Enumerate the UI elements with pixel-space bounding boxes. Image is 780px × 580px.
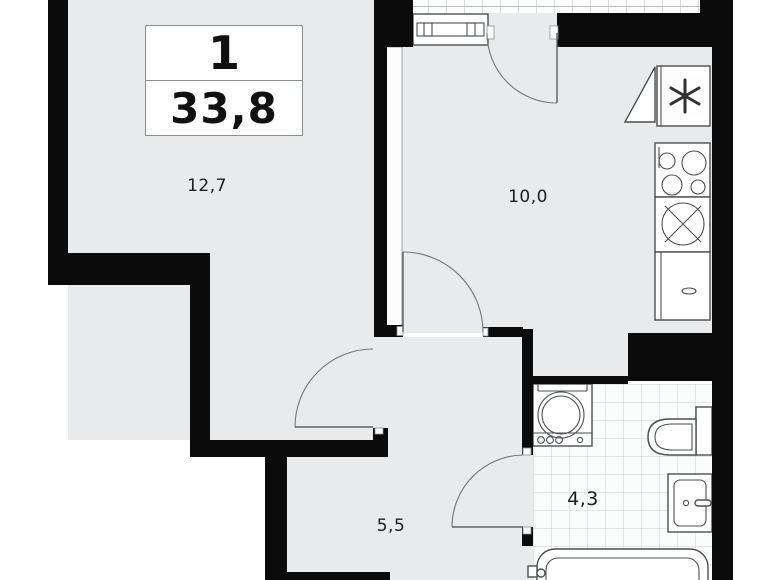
bathroom-sink-icon (668, 474, 712, 532)
kitchen-sink-icon (655, 197, 710, 252)
floor-plan-drawing (0, 0, 780, 580)
hallway-floor (285, 337, 533, 580)
total-area: 33,8 (146, 81, 302, 135)
window-icon (413, 14, 488, 45)
balcony-doorway-floor (487, 13, 557, 47)
washing-machine-icon (533, 384, 592, 446)
rooms-count: 1 (146, 26, 302, 81)
bathtub-icon (528, 549, 708, 580)
kitchen-floor-strip (533, 333, 628, 377)
room-label-living-room: 12,7 (187, 176, 227, 196)
room-label-kitchen: 10,0 (508, 187, 548, 207)
room-label-bathroom: 4,3 (567, 488, 599, 510)
balcony-grid (408, 0, 700, 13)
kitchen-counter-icon (655, 252, 710, 320)
floor-plan: 1 33,8 12,7 10,0 5,5 4,3 (0, 0, 780, 580)
room-label-hallway: 5,5 (377, 516, 406, 536)
stove-icon (655, 143, 710, 197)
plan-title-box: 1 33,8 (145, 25, 303, 136)
vent-shaft-icon (386, 47, 402, 332)
fridge-icon (657, 66, 710, 126)
